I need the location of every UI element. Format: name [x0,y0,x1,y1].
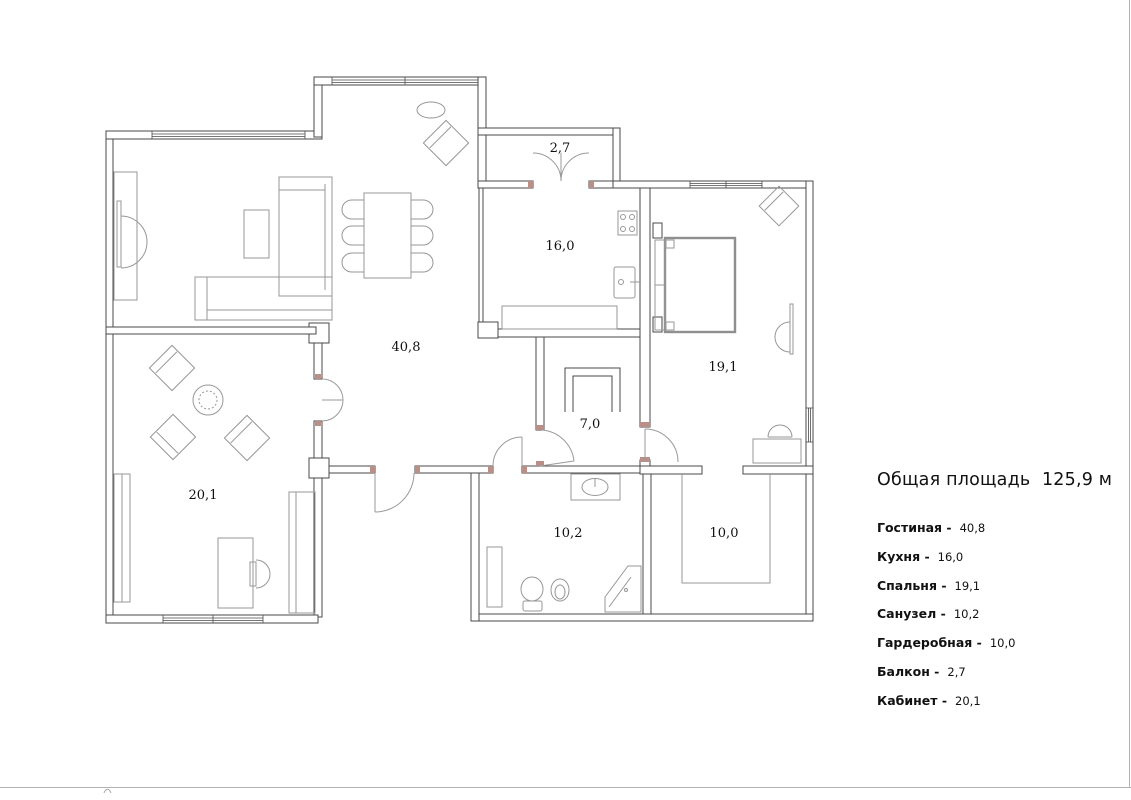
legend: Общая площадь 125,9 м Гостиная - 40,8 Ку… [877,470,1112,722]
legend-items: Гостиная - 40,8 Кухня - 16,0 Спальня - 1… [877,520,1112,708]
armchair-office-1 [149,345,194,390]
stove [618,211,637,235]
furniture [114,102,801,613]
room-labels: 40,8 16,0 2,7 19,1 7,0 20,1 10,2 10,0 [189,141,739,541]
room-label-wardrobe: 10,0 [710,526,739,541]
legend-label: Кухня - [877,549,930,564]
legend-value: 16,0 [938,550,964,564]
bedroom-chair [768,425,792,437]
office-double-door [322,379,343,421]
corner-shower [605,566,641,612]
vanity-sink [571,474,620,500]
legend-value: 20,1 [955,694,981,708]
plant-table [193,385,223,415]
legend-row-living: Гостиная - 40,8 [877,520,1112,535]
kitchen-counter [502,306,617,329]
scan-artifact [104,789,111,793]
room-label-balcony: 2,7 [550,141,571,156]
office-desk [218,538,253,608]
legend-label: Гостиная - [877,520,952,535]
bedroom-desk [753,439,801,463]
corridor-door [540,430,574,466]
tv-living [117,201,147,268]
legend-label: Спальня - [877,578,947,593]
bookcase-right [289,492,315,613]
balcony-double-door [533,153,589,181]
legend-row-office: Кабинет - 20,1 [877,693,1112,708]
legend-label: Балкон - [877,664,939,679]
side-table-oval [417,102,445,118]
legend-label: Кабинет - [877,693,947,708]
bathroom-door [493,437,522,466]
legend-value: 10,0 [990,636,1016,650]
legend-row-bathroom: Санузел - 10,2 [877,606,1112,621]
armchair-office-3 [224,415,269,460]
bookcase-left [114,474,130,602]
room-label-bedroom: 19,1 [709,360,738,375]
legend-value: 10,2 [954,607,980,621]
legend-row-kitchen: Кухня - 16,0 [877,549,1112,564]
legend-row-bedroom: Спальня - 19,1 [877,578,1112,593]
towel-cabinet [487,547,502,607]
room-label-hallway: 7,0 [580,417,601,432]
dining-chairs [342,200,433,272]
legend-value: 40,8 [960,521,986,535]
sofa-main [279,177,332,296]
legend-value: 2,7 [947,665,965,679]
legend-row-wardrobe: Гардеробная - 10,0 [877,635,1112,650]
bed [655,238,735,332]
legend-title: Общая площадь 125,9 м [877,470,1112,490]
room-label-kitchen: 16,0 [546,239,575,254]
kitchen-sink [614,267,641,298]
corridor-niche [565,368,620,412]
console-table [244,210,269,258]
sofa-chaise [195,277,332,320]
legend-value: 19,1 [955,579,981,593]
entrance-door [375,473,414,512]
tv-bedroom [775,304,793,354]
room-label-bathroom: 10,2 [554,526,583,541]
armchair-bedroom [759,186,799,226]
bidet [551,579,569,601]
armchair-living [423,120,468,165]
legend-label: Санузел - [877,606,946,621]
armchair-office-2 [150,414,195,459]
dining-table [364,193,411,278]
legend-row-balcony: Балкон - 2,7 [877,664,1112,679]
room-label-living: 40,8 [392,340,421,355]
toilet [521,577,543,611]
legend-label: Гардеробная - [877,635,982,650]
walls [106,77,813,623]
room-label-office: 20,1 [189,488,218,503]
